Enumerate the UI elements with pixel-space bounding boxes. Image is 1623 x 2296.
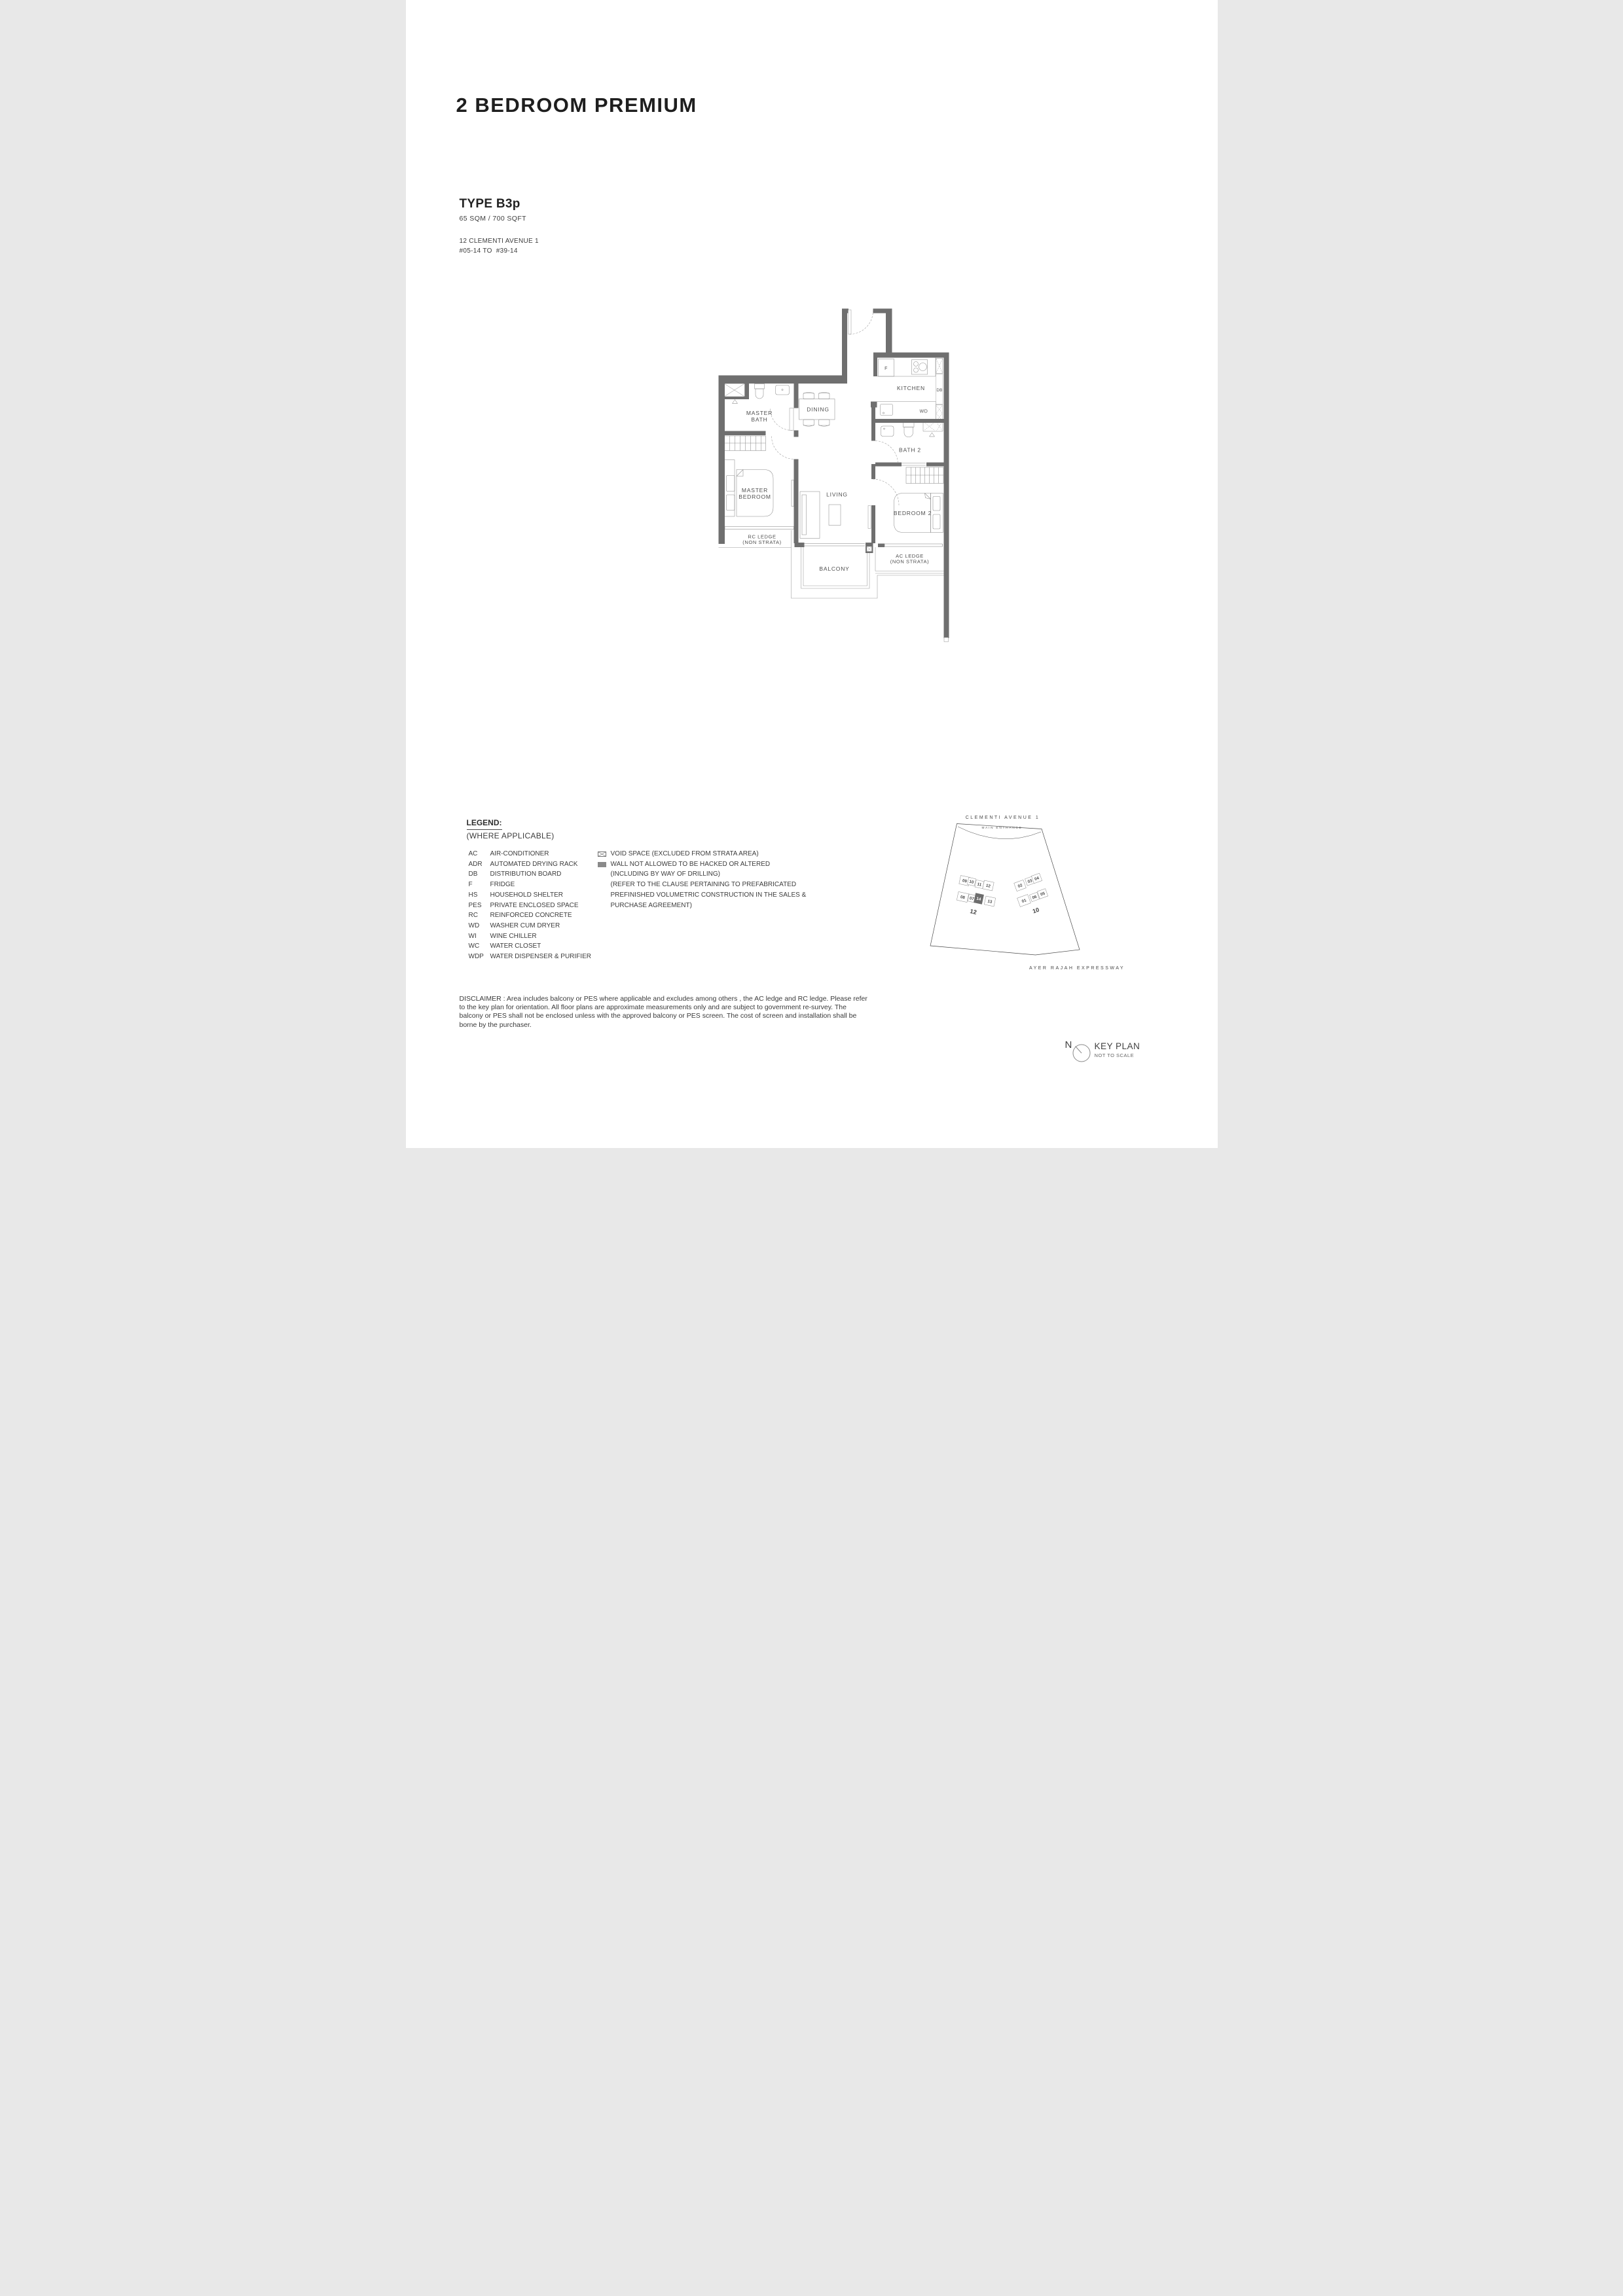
unit-address: 12 CLEMENTI AVENUE 1 <box>460 237 539 245</box>
legend-item: ADRAUTOMATED DRYING RACK <box>469 859 591 870</box>
legend-symbol-notes: (INCLUDING BY WAY OF DRILLING) (REFER TO… <box>611 869 807 910</box>
legend-item: PESPRIVATE ENCLOSED SPACE <box>469 901 591 911</box>
room-label-balcony: BALCONY <box>819 565 849 572</box>
keyplan-block-label-10: 10 <box>1031 906 1040 915</box>
room-label-kitchen: KITCHEN <box>897 385 925 391</box>
legend-item: HSHOUSEHOLD SHELTER <box>469 890 591 901</box>
kitchen-sink <box>880 404 892 416</box>
entrance-door-arc <box>849 311 873 334</box>
unit-info-block: TYPE B3p 65 SQM / 700 SQFT 12 CLEMENTI A… <box>460 197 539 255</box>
room-label-master-bedroom: MASTER <box>741 487 767 493</box>
label-ac-ledge: AC LEDGE <box>896 553 924 559</box>
key-plan: CLEMENTI AVENUE 1 MAIN ENTRANCE <box>926 808 1156 982</box>
keyplan-road-top: CLEMENTI AVENUE 1 <box>965 816 1040 820</box>
room-label-dining: DINING <box>807 406 830 413</box>
keyplan-legend: N KEY PLAN NOT TO SCALE <box>1063 1039 1168 1066</box>
room-label-bedroom2: BEDROOM 2 <box>893 510 931 516</box>
legend-heading: LEGEND: <box>467 818 502 830</box>
keyplan-block-10-cluster <box>1013 873 1048 906</box>
legend-item: WDWASHER CUM DRYER <box>469 921 591 931</box>
unit-area: 65 SQM / 700 SQFT <box>460 215 539 223</box>
legend-item: DBDISTRIBUTION BOARD <box>469 869 591 880</box>
label-rc-ledge-2: (NON STRATA) <box>742 539 781 545</box>
room-labels: MASTER BATH DINING KITCHEN F DB WD BATH … <box>739 367 942 572</box>
legend-symbol-void: VOID SPACE (EXCLUDED FROM STRATA AREA) <box>598 849 807 859</box>
wall-icon <box>598 862 606 867</box>
label-fridge: F <box>884 367 888 371</box>
room-label-master-bath: MASTER <box>746 410 772 416</box>
master-bedroom-door-arc <box>771 437 794 459</box>
label-wd: WD <box>919 410 928 414</box>
vent-triangle-icon <box>732 400 737 404</box>
walls <box>718 309 949 639</box>
master-bath-door-arc <box>770 409 792 431</box>
sofa <box>800 492 820 539</box>
keyplan-not-to-scale: NOT TO SCALE <box>1095 1052 1135 1058</box>
coffee-table <box>829 505 841 526</box>
room-label-bath2: BATH 2 <box>899 447 921 454</box>
room-label-master-bedroom-2: BEDROOM <box>739 493 771 500</box>
legend-item: WCWATER CLOSET <box>469 941 591 952</box>
disclaimer-text: DISCLAIMER : Area includes balcony or PE… <box>460 995 868 1030</box>
page-title: 2 BEDROOM PREMIUM <box>456 94 697 117</box>
label-ac-ledge-2: (NON STRATA) <box>890 559 928 565</box>
legend-symbols: VOID SPACE (EXCLUDED FROM STRATA AREA) W… <box>598 849 807 910</box>
floorplan-brochure-page: 2 BEDROOM PREMIUM TYPE B3p 65 SQM / 700 … <box>406 0 1218 1148</box>
keyplan-title: KEY PLAN <box>1095 1041 1140 1051</box>
master-wardrobe <box>724 436 765 451</box>
legend-item: ACAIR-CONDITIONER <box>469 849 591 859</box>
void-space-icon <box>598 852 606 857</box>
master-bath-door-leaf <box>790 408 793 431</box>
keyplan-road-bottom: AYER RAJAH EXPRESSWAY <box>1029 966 1124 971</box>
bedroom2-door-leaf <box>868 506 871 529</box>
vent-triangle-icon <box>929 433 934 437</box>
label-db: DB <box>936 388 942 393</box>
compass-icon <box>1072 1043 1091 1063</box>
legend-item: WIWINE CHILLER <box>469 931 591 942</box>
legend-symbol-wall: WALL NOT ALLOWED TO BE HACKED OR ALTERED <box>598 859 807 870</box>
bath2-door-arc <box>875 441 898 465</box>
legend-items: ACAIR-CONDITIONER ADRAUTOMATED DRYING RA… <box>469 849 591 962</box>
unit-type: TYPE B3p <box>460 197 539 211</box>
hob <box>911 360 927 375</box>
legend-item: WDPWATER DISPENSER & PURIFIER <box>469 952 591 962</box>
bedroom2-wardrobe <box>906 467 943 484</box>
legend-subheading: (WHERE APPLICABLE) <box>467 831 555 840</box>
label-rc-ledge: RC LEDGE <box>748 534 776 540</box>
keyplan-block-label-12: 12 <box>969 908 977 916</box>
floor-plan: MASTER BATH DINING KITCHEN F DB WD BATH … <box>714 304 953 647</box>
room-label-living: LIVING <box>826 492 848 498</box>
bedroom2-door-arc <box>873 479 899 505</box>
site-boundary <box>930 824 1080 956</box>
unit-stack: #05-14 TO #39-14 <box>460 247 539 255</box>
room-label-master-bath-2: BATH <box>751 416 767 423</box>
legend-item: RCREINFORCED CONCRETE <box>469 910 591 921</box>
entrance-door-leaf <box>848 310 851 334</box>
legend-item: FFRIDGE <box>469 880 591 890</box>
